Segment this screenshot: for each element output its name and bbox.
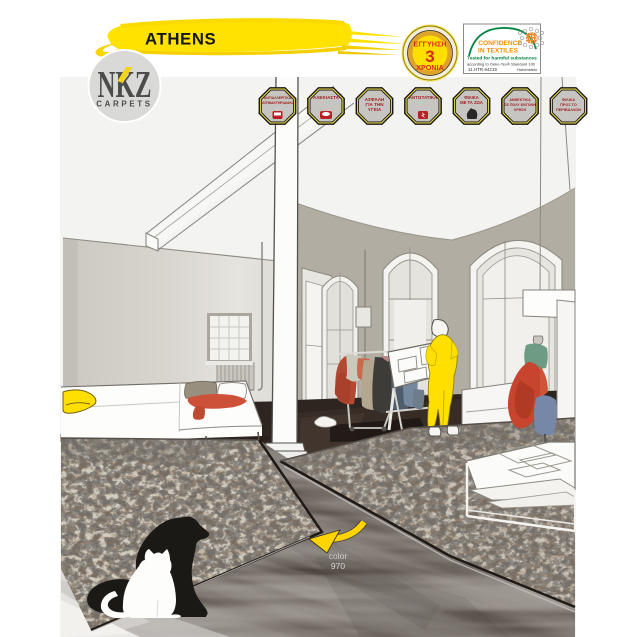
svg-text:ΠΕΡΙΒΑΛΛΟΝ: ΠΕΡΙΒΑΛΛΟΝ [556, 108, 581, 112]
svg-text:ΑΛΕΚΙΑΣΤΑ: ΑΛΕΚΙΑΣΤΑ [313, 95, 340, 100]
svg-text:CARPETS: CARPETS [96, 100, 152, 109]
svg-text:ATHENS: ATHENS [145, 30, 216, 49]
svg-text:ΑΝΤΙΑΛΛΕΡΓΙΚΑ: ΑΝΤΙΑΛΛΕΡΓΙΚΑ [264, 96, 292, 100]
svg-text:11.HTR.94219: 11.HTR.94219 [468, 67, 497, 72]
svg-text:ΑΝΘΕΚΤΙΚΑ: ΑΝΘΕΚΤΙΚΑ [509, 98, 531, 102]
svg-text:ΑΝΤΙΣΤΑΤΙΚΑ: ΑΝΤΙΣΤΑΤΙΚΑ [409, 95, 438, 100]
svg-text:color: color [329, 551, 348, 561]
svg-text:IN TEXTILES: IN TEXTILES [478, 48, 519, 55]
svg-text:ΧΡΟΝΙΑ: ΧΡΟΝΙΑ [416, 63, 444, 72]
svg-text:ΣΕ ΠΟΛΥ ΕΝΤΟΝΗ: ΣΕ ΠΟΛΥ ΕΝΤΟΝΗ [504, 103, 536, 107]
svg-text:ΦΙΛΙΚΑ: ΦΙΛΙΚΑ [562, 98, 576, 102]
svg-text:ΠΡΟΣ ΤΟ: ΠΡΟΣ ΤΟ [560, 103, 577, 107]
svg-text:CONFIDENCE: CONFIDENCE [478, 40, 522, 47]
svg-text:ΥΓΕΙΑ: ΥΓΕΙΑ [368, 107, 382, 112]
svg-text:970: 970 [331, 561, 345, 571]
svg-text:ΜΕ ΤΑ ΖΩΑ: ΜΕ ΤΑ ΖΩΑ [460, 100, 483, 105]
svg-text:ΧΡΗΣΗ: ΧΡΗΣΗ [514, 108, 527, 112]
svg-text:according to Oeko-Tex® Standar: according to Oeko-Tex® Standard 100 [467, 62, 536, 67]
svg-text:ΑΝΤΙΒΑΚΤΗΡΙΔΙΑΚΑ: ΑΝΤΙΒΑΚΤΗΡΙΔΙΑΚΑ [261, 101, 295, 105]
svg-text:Hohenstein: Hohenstein [517, 67, 537, 72]
